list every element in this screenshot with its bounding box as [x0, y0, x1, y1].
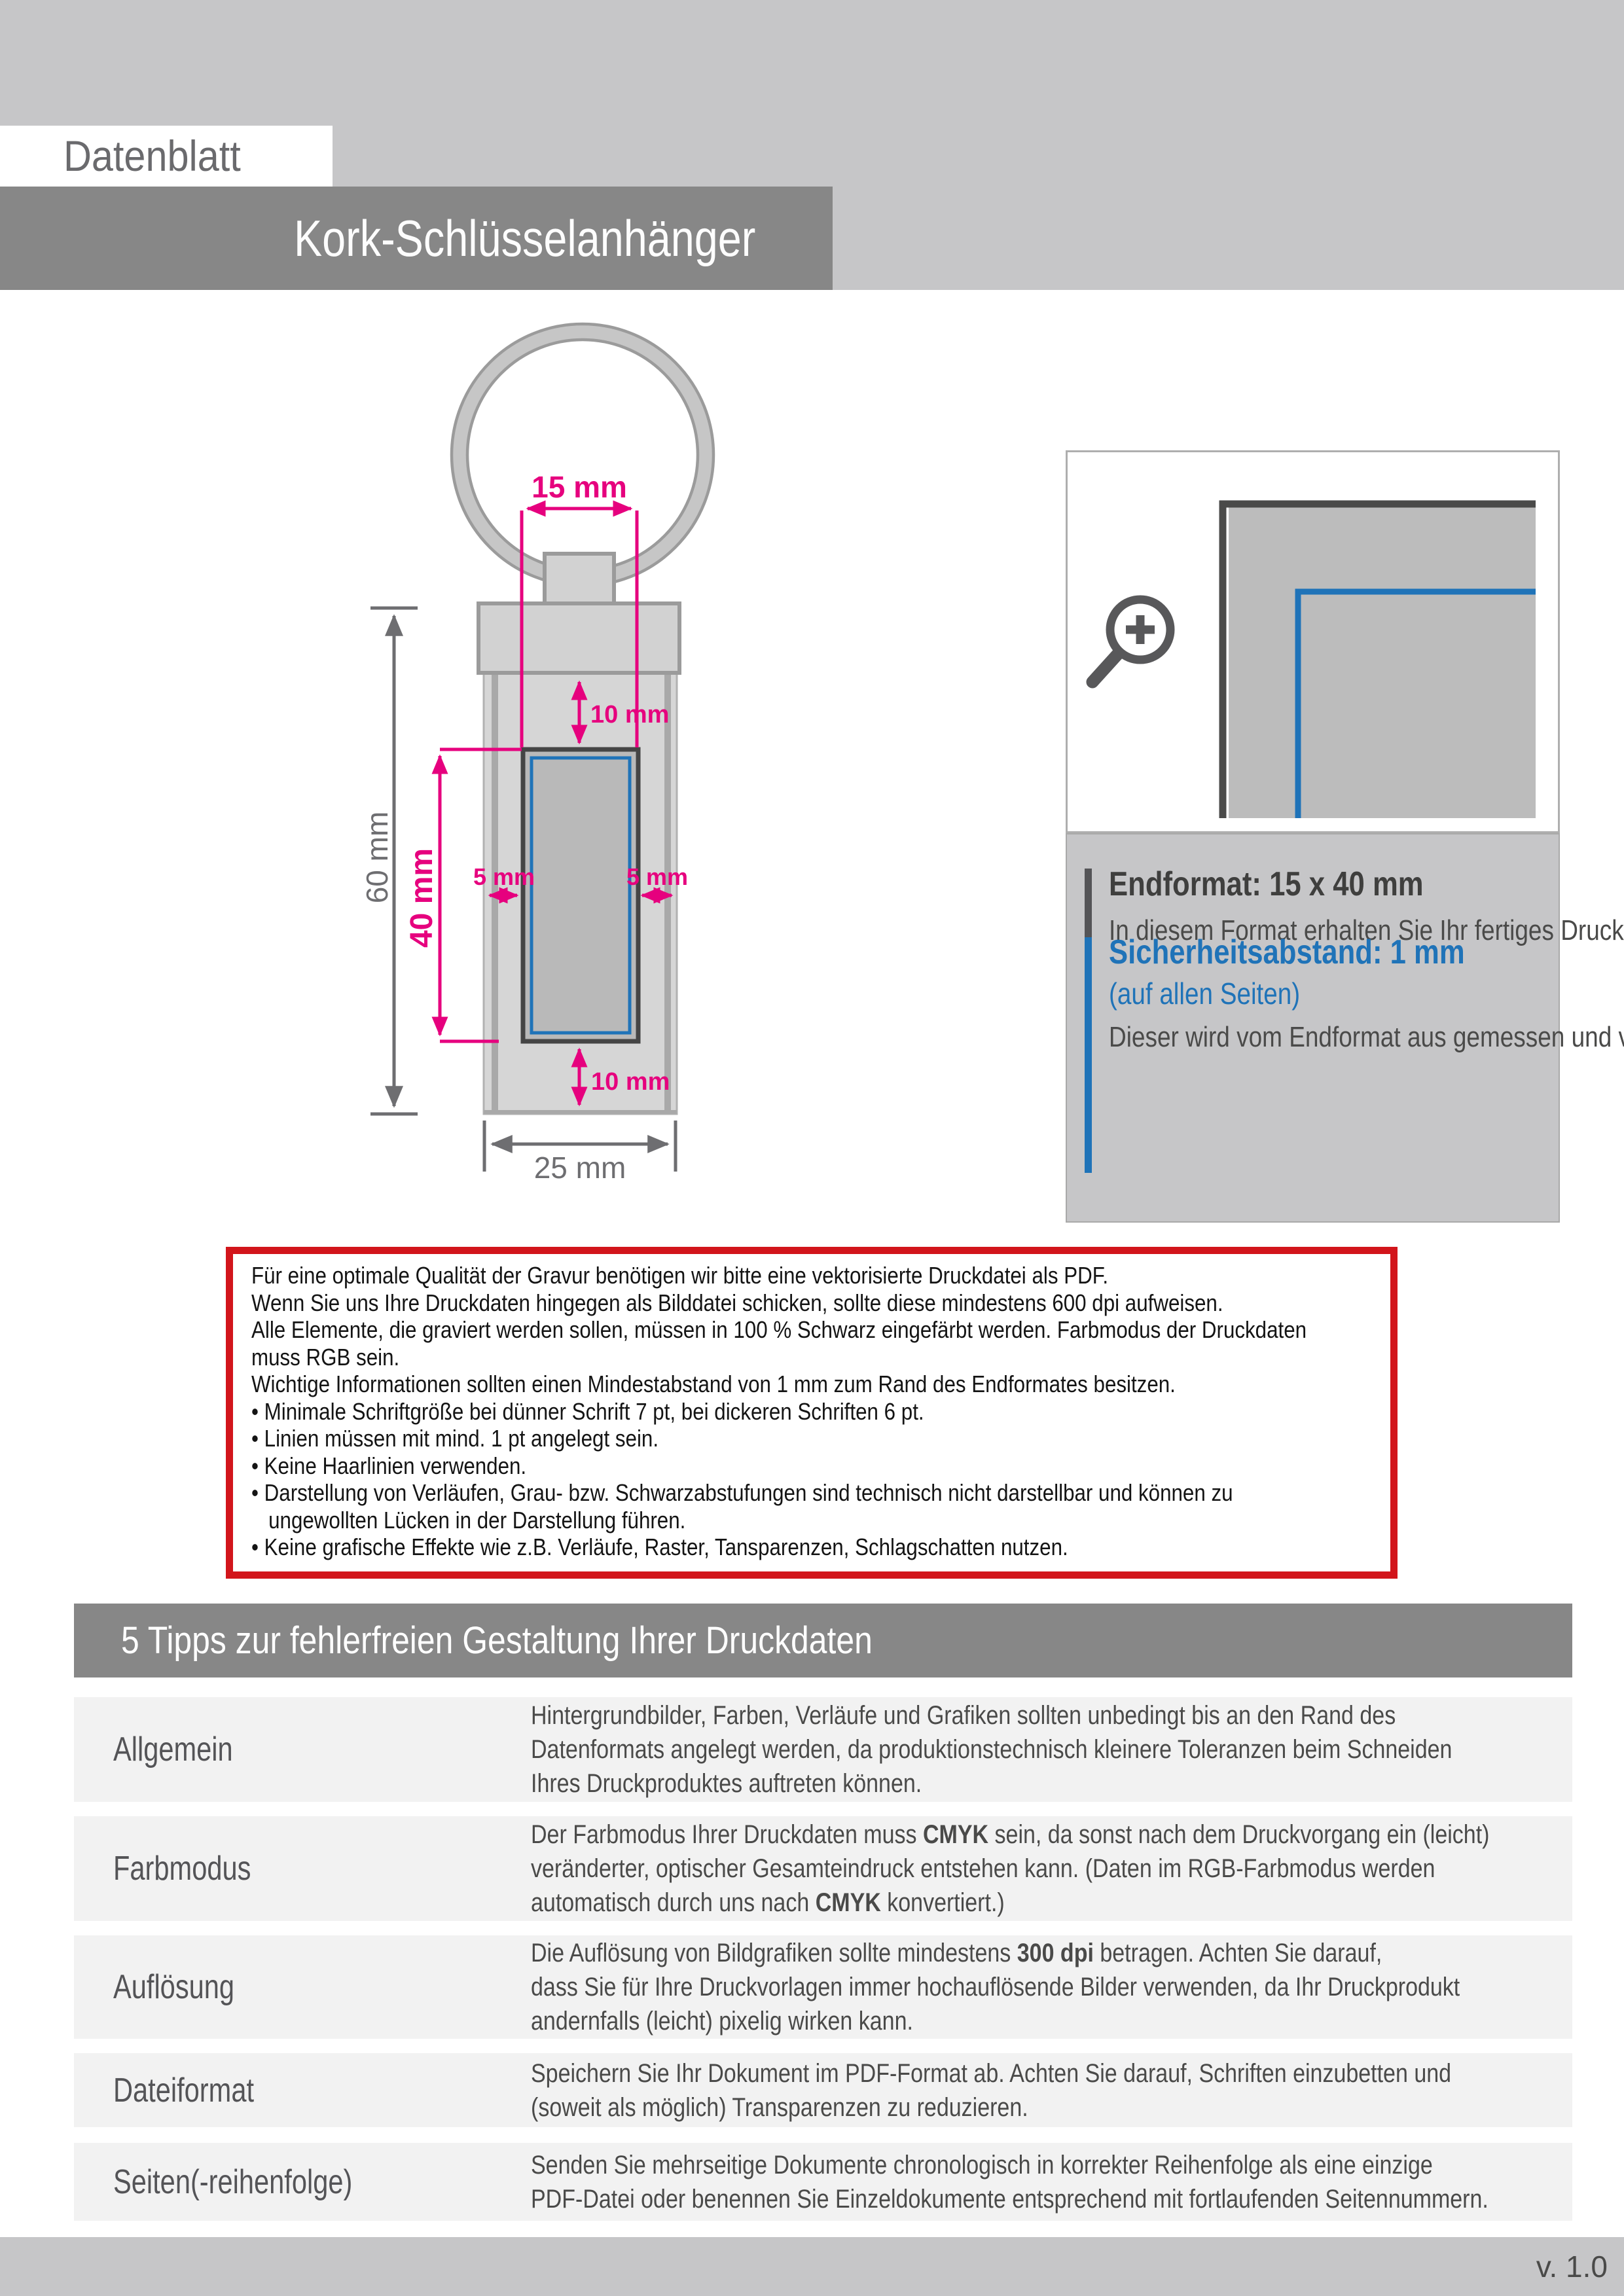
keyring-inner-edge	[467, 340, 698, 570]
tip-description: Hintergrundbilder, Farben, Verläufe und …	[531, 1697, 1615, 1802]
label-5mm-right: 5 mm	[626, 863, 688, 890]
product-dimension-labels: 60 mm 25 mm	[360, 812, 626, 1185]
tips-header-bar: 5 Tipps zur fehlerfreien Gestaltung Ihre…	[74, 1604, 1572, 1677]
safety-body: Dieser wird vom Endformat aus gemessen u…	[1109, 1016, 1624, 1058]
version-label: v. 1.0	[1536, 2237, 1608, 2296]
tips-title: 5 Tipps zur fehlerfreien Gestaltung Ihre…	[121, 1604, 873, 1677]
datasheet-page: Datenblatt Kork-Schlüsselanhänger Endfor…	[0, 0, 1624, 2296]
zoom-detail-box	[1066, 450, 1560, 833]
page-title-label: Kork-Schlüsselanhänger	[294, 187, 755, 290]
label-10mm-top: 10 mm	[590, 701, 669, 728]
body-stripe-right	[664, 674, 671, 1113]
print-dimension-labels: 15 mm 10 mm 40 mm 5 mm 5 mm 10 mm	[405, 470, 688, 1096]
endformat-title: Endformat: 15 x 40 mm	[1109, 865, 1483, 904]
footer-band: v. 1.0	[0, 2237, 1624, 2296]
keychain-illustration	[452, 324, 713, 1114]
label-40mm: 40 mm	[405, 848, 439, 948]
tip-label: Auflösung	[113, 1935, 264, 2039]
tip-row-allgemein: Allgemein Hintergrundbilder, Farben, Ver…	[74, 1697, 1572, 1802]
label-60mm: 60 mm	[360, 812, 394, 904]
safety-title: Sicherheitsabstand: 1 mm	[1109, 933, 1532, 972]
safety-accent-bar	[1085, 937, 1092, 1173]
tip-label: Dateiformat	[113, 2053, 289, 2127]
tip-description: Die Auflösung von Bildgrafiken sollte mi…	[531, 1935, 1624, 2039]
page-kicker: Datenblatt	[0, 126, 261, 187]
label-10mm-bottom: 10 mm	[591, 1068, 670, 1096]
label-25mm: 25 mm	[534, 1151, 626, 1185]
connector-tab	[545, 554, 614, 605]
keyring-band	[460, 332, 706, 578]
tip-label: Allgemein	[113, 1697, 262, 1802]
safety-margin-rect	[532, 758, 630, 1033]
tip-description: Speichern Sie Ihr Dokument im PDF-Format…	[531, 2053, 1614, 2127]
cork-body	[484, 673, 677, 1114]
print-dimensions	[440, 509, 672, 1105]
tip-description: Der Farbmodus Ihrer Druckdaten muss CMYK…	[531, 1816, 1624, 1921]
tip-row-aufloesung: Auflösung Die Auflösung von Bildgrafiken…	[74, 1935, 1572, 2039]
tip-row-farbmodus: Farbmodus Der Farbmodus Ihrer Druckdaten…	[74, 1816, 1572, 1921]
label-5mm-left: 5 mm	[473, 863, 535, 890]
metal-cap	[478, 603, 679, 673]
engraving-notice-box: Für eine optimale Qualität der Gravur be…	[226, 1247, 1398, 1579]
tip-row-dateiformat: Dateiformat Speichern Sie Ihr Dokument i…	[74, 2053, 1572, 2127]
keyring-outer-edge	[452, 324, 713, 586]
notice-text: Für eine optimale Qualität der Gravur be…	[251, 1262, 1307, 1561]
page-title: Kork-Schlüsselanhänger	[0, 187, 850, 290]
page-kicker-label: Datenblatt	[63, 126, 241, 187]
tip-description: Senden Sie mehrseitige Dokumente chronol…	[531, 2143, 1624, 2221]
print-area	[523, 749, 638, 1041]
format-info-panel: Endformat: 15 x 40 mm In diesem Format e…	[1066, 833, 1560, 1223]
tip-label: Farbmodus	[113, 1816, 285, 1921]
tip-row-seitenreihenfolge: Seiten(-reihenfolge) Senden Sie mehrseit…	[74, 2143, 1572, 2221]
body-bottom-edge	[484, 1110, 677, 1114]
body-stripe-left	[492, 674, 498, 1113]
safety-subtitle: (auf allen Seiten)	[1109, 976, 1337, 1011]
product-dimensions	[370, 608, 676, 1172]
tip-label: Seiten(-reihenfolge)	[113, 2143, 412, 2221]
label-15mm: 15 mm	[532, 470, 627, 504]
